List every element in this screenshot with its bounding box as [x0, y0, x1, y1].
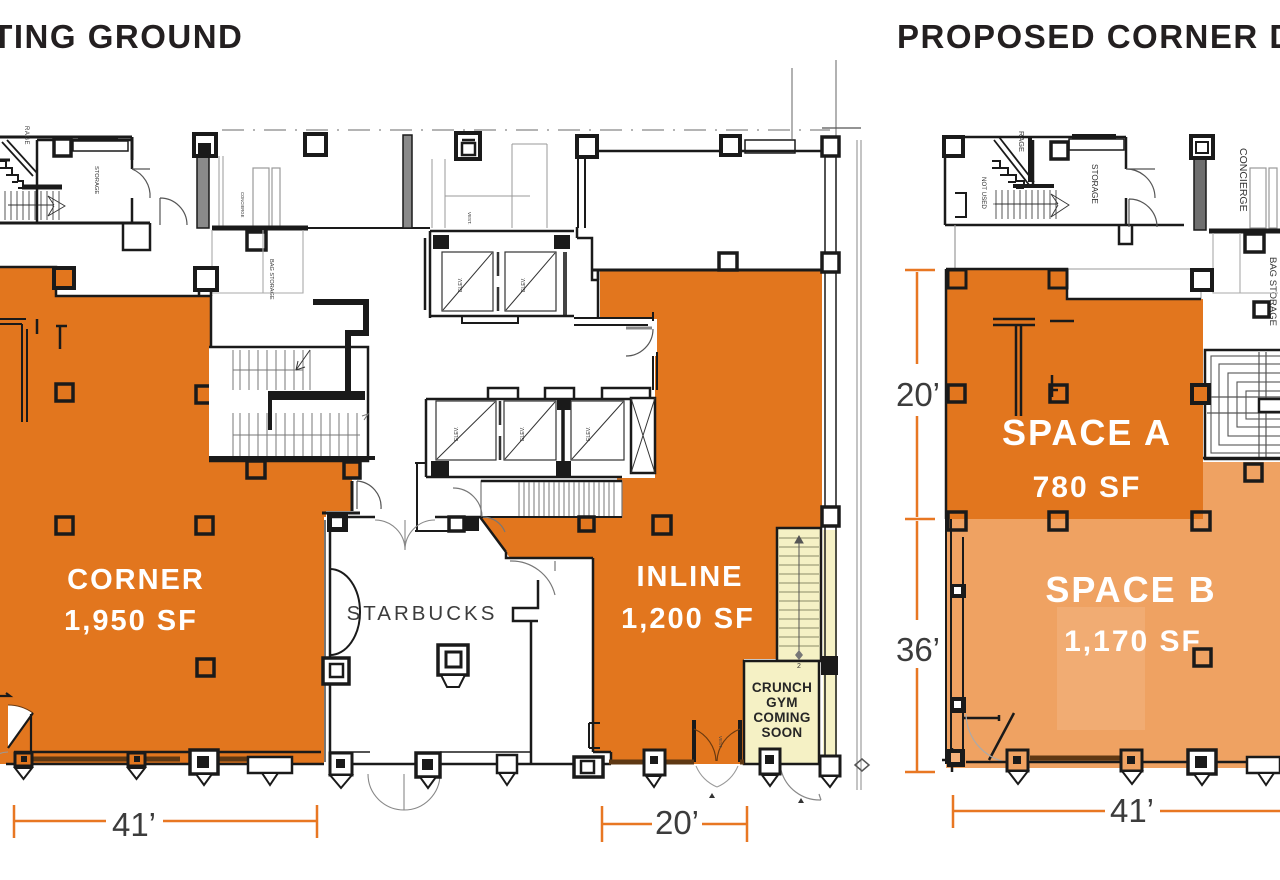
svg-text:ELEV.: ELEV.	[521, 278, 527, 292]
svg-text:STORAGE: STORAGE	[93, 166, 99, 194]
svg-text:SPACE A: SPACE A	[1002, 412, 1172, 453]
svg-text:EXISTING GROUND: EXISTING GROUND	[0, 18, 243, 55]
svg-text:COMING: COMING	[753, 710, 810, 725]
svg-text:VEST: VEST	[718, 736, 723, 748]
svg-text:1,170 SF: 1,170 SF	[1064, 625, 1202, 658]
svg-text:1,200 SF: 1,200 SF	[621, 603, 755, 635]
svg-text:RAGE: RAGE	[23, 126, 29, 145]
svg-text:VEST.: VEST.	[467, 212, 472, 225]
svg-text:ELEV.: ELEV.	[586, 427, 592, 441]
svg-text:1,950 SF: 1,950 SF	[64, 605, 198, 637]
svg-text:STARBUCKS: STARBUCKS	[347, 602, 498, 625]
svg-text:NOT USED: NOT USED	[980, 177, 987, 209]
svg-text:ELEV.: ELEV.	[520, 427, 526, 441]
svg-text:INLINE: INLINE	[636, 561, 743, 593]
svg-text:20’: 20’	[896, 376, 940, 413]
svg-text:STORAGE: STORAGE	[1090, 164, 1099, 204]
svg-text:SPACE B: SPACE B	[1045, 569, 1216, 610]
svg-text:BAG STORAGE: BAG STORAGE	[268, 259, 274, 300]
svg-text:CRUNCH: CRUNCH	[752, 680, 812, 695]
svg-text:2: 2	[797, 663, 801, 670]
svg-text:36’: 36’	[896, 631, 940, 668]
svg-text:RAGE: RAGE	[1017, 131, 1026, 152]
svg-text:CORNER: CORNER	[67, 564, 205, 596]
svg-text:GYM: GYM	[766, 695, 798, 710]
svg-text:20’: 20’	[655, 804, 699, 841]
svg-text:ELEV.: ELEV.	[458, 278, 464, 292]
svg-text:41’: 41’	[1110, 792, 1154, 829]
svg-text:SOON: SOON	[762, 725, 803, 740]
svg-text:41’: 41’	[112, 806, 156, 843]
svg-text:CONCIERGE: CONCIERGE	[1237, 148, 1249, 212]
svg-text:PROPOSED CORNER DIVISION: PROPOSED CORNER DIVISION	[897, 18, 1280, 55]
svg-text:ELEV.: ELEV.	[454, 427, 460, 441]
svg-text:CONCIERGE: CONCIERGE	[240, 192, 245, 218]
svg-text:780 SF: 780 SF	[1033, 471, 1142, 504]
